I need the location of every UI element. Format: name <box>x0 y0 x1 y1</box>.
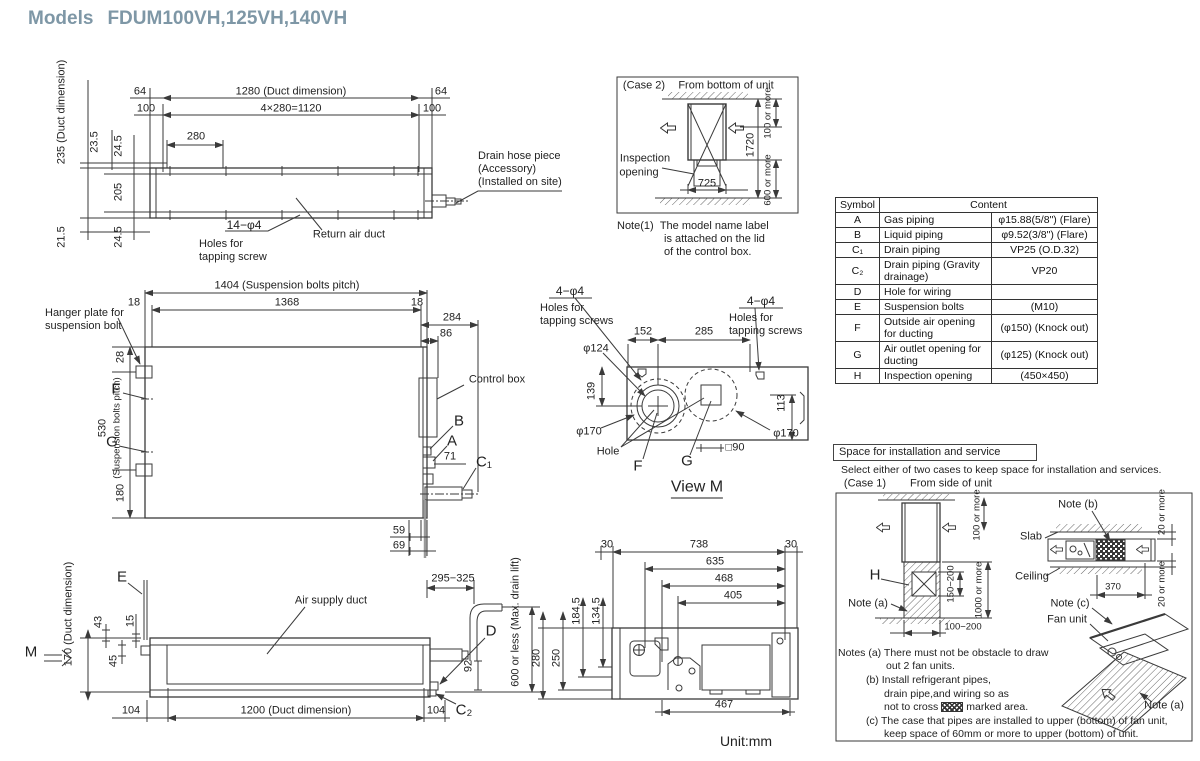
drain-hose-line2: (Accessory) <box>478 163 562 176</box>
val-g: (φ125) (Knock out) <box>992 342 1098 369</box>
unit-note: Unit:mm <box>720 734 772 748</box>
dim-64-right: 64 <box>435 87 447 98</box>
note1-line3: of the control box. <box>664 246 769 259</box>
dim-sq90: □90 <box>726 443 745 454</box>
dim-152: 152 <box>634 327 652 338</box>
symbol-e: E <box>117 570 127 585</box>
dim-71: 71 <box>444 452 456 463</box>
note-a2-label: Note (a) <box>1144 701 1184 712</box>
table-row: DHole for wiring <box>836 285 1098 300</box>
drawing-sheet: ModelsFDUM100VH,125VH,140VH 64 1280 (Duc… <box>0 0 1200 761</box>
dim-600-or-more: 600 or more <box>763 154 773 205</box>
dim-69: 69 <box>393 541 405 552</box>
ceiling-label: Ceiling <box>1015 572 1049 583</box>
dim-104-left: 104 <box>122 706 140 717</box>
air-supply-duct-label: Air supply duct <box>295 596 367 607</box>
case2-subtitle: From bottom of unit <box>678 81 773 92</box>
dim-100-right: 100 <box>423 104 441 115</box>
note-b-label: Note (b) <box>1058 500 1098 511</box>
tap-right-line2: tapping screws <box>729 325 802 338</box>
hanger-plate-caption: Hanger plate for suspension bolt <box>45 307 124 333</box>
name-f: Outside air opening for ducting <box>880 315 992 342</box>
dim-1200: 1200 (Duct dimension) <box>241 706 352 717</box>
name-c2: Drain piping (Gravity drainage) <box>880 258 992 285</box>
models-label: Models <box>28 8 93 29</box>
sym-g: G <box>836 342 880 369</box>
dim-1280: 1280 (Duct dimension) <box>236 87 347 98</box>
sym-f: F <box>836 315 880 342</box>
tap-right-line1: Holes for <box>729 312 802 325</box>
table-header-content: Content <box>880 198 1098 213</box>
note1-block: Note(1) The model name label is attached… <box>617 220 769 259</box>
case1-label: (Case 1) <box>844 479 886 490</box>
val-b: φ9.52(3/8") (Flare) <box>992 228 1098 243</box>
table-row: HInspection opening(450×450) <box>836 369 1098 384</box>
dim-104-right: 104 <box>427 706 445 717</box>
dim-295-325: 295−325 <box>431 574 474 585</box>
airflow-arrow-icon <box>1136 545 1148 553</box>
dim-184-5: 184.5 <box>572 597 583 625</box>
dim-180: 180 <box>116 484 127 502</box>
case2-label: (Case 2) <box>623 81 665 92</box>
dim-20-or-more-bottom: 20 or more <box>1157 561 1167 607</box>
dim-1120: 4×280=1120 <box>261 104 322 115</box>
dim-45: 45 <box>109 655 120 667</box>
drain-hose-piece <box>425 195 470 207</box>
table-row: GAir outlet opening for ducting(φ125) (K… <box>836 342 1098 369</box>
table-row: ESuspension bolts(M10) <box>836 300 1098 315</box>
hanger-plate-line2: suspension bolt <box>45 320 124 333</box>
airflow-arrow-icon <box>942 523 955 532</box>
airflow-arrow-icon <box>661 123 676 133</box>
dim-235: 235 (Duct dimension) <box>57 60 68 165</box>
inspection-opening-line1: Inspection <box>620 154 670 165</box>
note1-line2: is attached on the lid <box>664 233 769 246</box>
notes-line1: Notes (a) There must not be obstacle to … <box>838 647 1049 660</box>
dim-370: 370 <box>1105 582 1121 592</box>
val-c2: VP20 <box>992 258 1098 285</box>
symbol-f-viewm: F <box>633 459 642 474</box>
tap-left-count: 4−φ4 <box>556 285 584 297</box>
page-title: ModelsFDUM100VH,125VH,140VH <box>28 8 361 30</box>
table-row: C₁Drain pipingVP25 (O.D.32) <box>836 243 1098 258</box>
dim-1368: 1368 <box>275 298 299 309</box>
dim-405: 405 <box>724 591 742 602</box>
airflow-arrow-icon <box>1050 545 1062 553</box>
tap-left-line2: tapping screws <box>540 315 613 328</box>
hanger-plate-line1: Hanger plate for <box>45 307 124 320</box>
dim-28: 28 <box>116 351 127 363</box>
name-e: Suspension bolts <box>880 300 992 315</box>
dim-100-or-more-case1: 100 or more <box>972 489 982 540</box>
dim-24-5-bottom: 24.5 <box>114 226 125 247</box>
table-row: FOutside air opening for ducting(φ150) (… <box>836 315 1098 342</box>
dim-23-5: 23.5 <box>90 131 101 152</box>
dim-92: 92 <box>464 660 475 672</box>
tapping-hole-notch <box>756 372 764 379</box>
view-m-title: View M <box>671 480 723 499</box>
table-row: BLiquid pipingφ9.52(3/8") (Flare) <box>836 228 1098 243</box>
dim-100-or-more: 100 or more <box>763 87 773 138</box>
dim-20-or-more-top: 20 or more <box>1157 489 1167 535</box>
dim-725: 725 <box>698 179 716 190</box>
dim-139: 139 <box>587 382 598 400</box>
dim-113: 113 <box>777 394 788 412</box>
models-value: FDUM100VH,125VH,140VH <box>107 8 347 29</box>
name-h: Inspection opening <box>880 369 992 384</box>
dim-134-5: 134.5 <box>592 597 603 625</box>
dim-59: 59 <box>393 526 405 537</box>
sym-e: E <box>836 300 880 315</box>
name-g: Air outlet opening for ducting <box>880 342 992 369</box>
table-row: C₂Drain piping (Gravity drainage)VP20 <box>836 258 1098 285</box>
val-a: φ15.88(5/8") (Flare) <box>992 213 1098 228</box>
sym-c1: C₁ <box>836 243 880 258</box>
note-c-label: Note (c) <box>1050 599 1089 610</box>
dim-1000-or-more: 1000 or more <box>974 562 984 619</box>
val-f: (φ150) (Knock out) <box>992 315 1098 342</box>
dim-phi124: φ124 <box>583 344 609 355</box>
holes-caption: Holes for tapping screw <box>199 238 267 264</box>
symbol-a: A <box>447 434 457 449</box>
notes-line7: keep space of 60mm or more to upper (bot… <box>884 728 1138 741</box>
holes-caption-line2: tapping screw <box>199 251 267 264</box>
symbol-g: G <box>106 435 118 450</box>
dim-18-left: 18 <box>128 298 140 309</box>
val-d <box>992 285 1098 300</box>
sym-b: B <box>836 228 880 243</box>
dim-64-left: 64 <box>134 87 146 98</box>
sym-a: A <box>836 213 880 228</box>
symbol-f: F <box>111 382 120 397</box>
dim-86: 86 <box>440 329 452 340</box>
symbol-b: B <box>454 414 464 429</box>
airflow-arrow-icon <box>729 123 744 133</box>
dim-phi170-left: φ170 <box>576 427 602 438</box>
dim-1720: 1720 <box>746 133 757 157</box>
table-header-symbol: Symbol <box>836 198 880 213</box>
tap-right-caption: Holes for tapping screws <box>729 312 802 338</box>
name-b: Liquid piping <box>880 228 992 243</box>
dim-30-right: 30 <box>785 540 797 551</box>
dim-15: 15 <box>126 615 137 627</box>
symbol-c1: C₁ <box>476 455 492 470</box>
drain-hose-line1: Drain hose piece <box>478 150 562 163</box>
holes-caption-line1: Holes for <box>199 238 267 251</box>
dim-635: 635 <box>706 557 724 568</box>
note-a-label: Note (a) <box>848 599 888 610</box>
dim-18-right: 18 <box>411 298 423 309</box>
control-box-label: Control box <box>469 375 525 386</box>
val-h: (450×450) <box>992 369 1098 384</box>
symbol-table: Symbol Content AGas pipingφ15.88(5/8") (… <box>835 197 1098 384</box>
dim-30-left: 30 <box>601 540 613 551</box>
dim-280-v: 280 <box>532 649 543 667</box>
marked-area-swatch-icon <box>941 702 963 712</box>
symbol-h: H <box>870 568 881 583</box>
slab-label: Slab <box>1020 532 1042 543</box>
install-intro: Select either of two cases to keep space… <box>841 464 1161 477</box>
drain-hose-line3: (Installed on site) <box>478 176 562 189</box>
dim-600-or-less: 600 or less (Max. drain lift) <box>511 557 522 687</box>
airflow-arrow-icon <box>876 523 889 532</box>
tap-left-caption: Holes for tapping screws <box>540 302 613 328</box>
dim-43: 43 <box>94 616 105 628</box>
sym-d: D <box>836 285 880 300</box>
name-c1: Drain piping <box>880 243 992 258</box>
val-e: (M10) <box>992 300 1098 315</box>
dim-100-200: 100−200 <box>944 622 981 632</box>
notes-line5a: not to cross <box>884 701 938 713</box>
name-d: Hole for wiring <box>880 285 992 300</box>
notes-line5: not to crossmarked area. <box>884 701 1028 714</box>
note1-label: Note(1) <box>617 220 654 232</box>
dim-phi170-right: φ170 <box>773 429 799 440</box>
table-row: AGas pipingφ15.88(5/8") (Flare) <box>836 213 1098 228</box>
dim-250: 250 <box>552 649 563 667</box>
dim-170: 170 (Duct dimension) <box>64 562 75 667</box>
hole-label: Hole <box>597 447 620 458</box>
notes-line5b: marked area. <box>966 701 1028 713</box>
notes-line6: (c) The case that pipes are installed to… <box>866 715 1168 728</box>
note1-line1: The model name label <box>660 220 769 232</box>
dim-738: 738 <box>690 540 708 551</box>
holes-count-label: 14−φ4 <box>227 219 262 231</box>
dim-468: 468 <box>715 574 733 585</box>
symbol-c2: C₂ <box>456 703 473 718</box>
symbol-g-viewm: G <box>681 454 693 469</box>
dim-284: 284 <box>443 313 461 324</box>
dim-21-5: 21.5 <box>57 226 68 247</box>
notes-line2: out 2 fan units. <box>886 660 955 673</box>
tapping-hole-notch <box>638 369 646 377</box>
dim-150-200: 150−200 <box>946 565 956 602</box>
sym-c2: C₂ <box>836 258 880 285</box>
return-air-duct-label: Return air duct <box>313 230 385 241</box>
dim-280: 280 <box>187 132 205 143</box>
install-header: Space for installation and service <box>833 444 1037 461</box>
symbol-d: D <box>486 624 497 639</box>
tap-right-count: 4−φ4 <box>747 295 775 307</box>
sym-h: H <box>836 369 880 384</box>
dim-1404: 1404 (Suspension bolts pitch) <box>215 281 360 292</box>
fan-unit-label: Fan unit <box>1047 615 1087 626</box>
case1-subtitle: From side of unit <box>910 479 992 490</box>
drain-hose-caption: Drain hose piece (Accessory) (Installed … <box>478 150 562 189</box>
notes-line3: (b) Install refrigerant pipes, <box>866 674 991 687</box>
notes-line4: drain pipe,and wiring so as <box>884 688 1009 701</box>
symbol-m: M <box>25 645 38 660</box>
bottom-plan-view <box>538 546 803 716</box>
tap-left-line1: Holes for <box>540 302 613 315</box>
dim-100-left: 100 <box>137 104 155 115</box>
dim-285: 285 <box>695 327 713 338</box>
dim-24-5-top: 24.5 <box>114 135 125 156</box>
dim-467: 467 <box>715 700 733 711</box>
mid-plan-view <box>112 290 480 558</box>
name-a: Gas piping <box>880 213 992 228</box>
inspection-opening-line2: opening <box>619 168 658 179</box>
val-c1: VP25 (O.D.32) <box>992 243 1098 258</box>
dim-205: 205 <box>114 183 125 201</box>
